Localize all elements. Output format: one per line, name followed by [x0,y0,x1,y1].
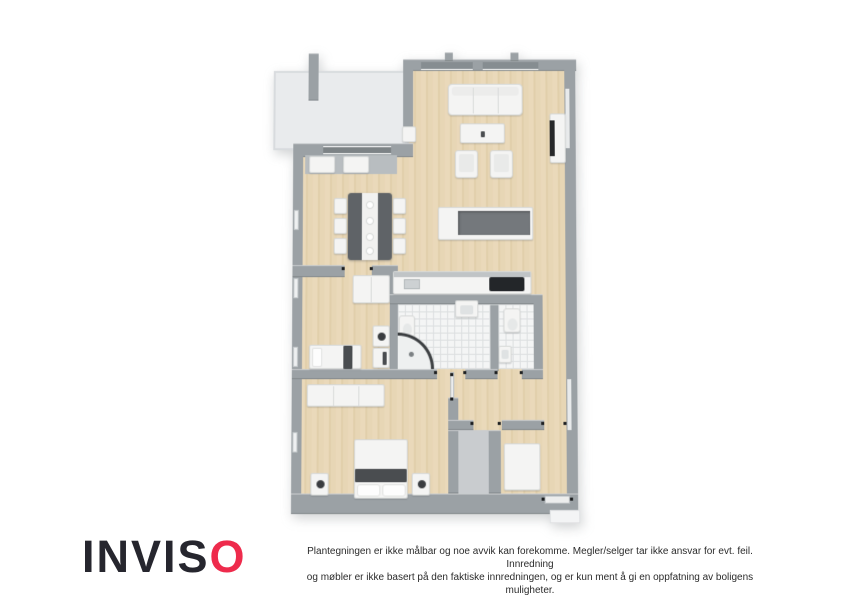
tv-screen [550,120,555,156]
bathroom-sink-basin [460,305,473,314]
right-wall-window-2 [567,379,571,430]
bottom-wall [291,493,578,514]
wc-toilet [503,308,520,332]
kitchen-wall-cabinet-2 [343,156,369,173]
wc-toilet-seat [507,318,517,330]
hall-top-wall-c [522,369,543,379]
door-mark [342,267,345,270]
door-mark [495,371,498,374]
balcony-slider-door [323,146,391,154]
door-mark [570,498,573,501]
dresser-unit [373,348,390,368]
bathroom-right-wall [534,294,543,377]
single-bed-blanket [343,346,352,369]
entrance-door [545,496,570,504]
sofa-seam-1 [473,88,474,114]
logo-letter-accent: O [210,531,247,582]
balcony-living-wall [403,59,413,130]
window-mullion-stub-2 [510,52,518,61]
storage-floor [458,430,489,493]
door-mark [542,498,545,501]
coffee-table [460,123,505,143]
storage-closet-wall [489,430,501,493]
door-mark [520,371,523,374]
door-mark [450,373,453,376]
dining-chair-right-1 [393,198,406,214]
sofa-back-cushion [452,87,519,96]
single-bed [309,345,362,369]
kitchen-island-counter-top [458,211,530,235]
nightstand-2-lamp [418,480,426,488]
door-mark [498,422,501,425]
double-bed-pillow-2 [382,484,405,496]
dining-chair-right-3 [393,238,406,254]
wc-basin-bowl [502,350,509,359]
door-mark [470,422,473,425]
door-mark [463,371,466,374]
double-bed [354,439,408,498]
bathroom-wc-wall [490,304,498,371]
armchair-1-seat [459,154,474,172]
nightstand-2 [412,473,430,496]
entry-wardrobe [504,443,541,490]
washing-machine-door [378,333,386,341]
nightstand-1 [310,473,328,496]
double-bed-blanket [355,469,407,482]
top-window-2 [483,62,539,70]
kitchen-island [438,207,533,240]
left-window-4 [292,432,297,452]
disclaimer-line-2: og møbler er ikke basert på den faktiske… [297,571,763,597]
sofa [448,84,523,116]
balcony-wall-stub [309,53,319,100]
sofa-seam-2 [498,88,499,114]
left-window-1 [294,210,299,230]
double-bed-pillow-1 [357,484,380,496]
dining-chair-left-2 [334,218,347,234]
dining-plate-2 [366,217,374,225]
door-mark [434,371,437,374]
nightstand-1-lamp [316,480,324,488]
door-mark [370,267,373,270]
dining-plate-4 [366,247,374,255]
lower-rooms-wall-b [502,420,545,430]
dining-chair-left-3 [334,238,347,254]
small-bedroom-wardrobe-seam [371,277,372,302]
door-mark [450,397,453,400]
dresser-unit-detail [383,352,387,365]
hall-top-wall-a [292,369,437,379]
cooktop [489,277,524,291]
master-wardrobe-seam-2 [358,386,359,405]
dining-bedroom-wall-a [292,265,344,277]
left-window-2 [293,278,298,298]
kitchen-wall-cabinet-row [305,155,397,174]
logo-text-dark: INVIS [82,531,210,582]
wall-end-shelf [402,126,416,142]
left-window-3 [293,347,298,367]
floor-plan [269,49,590,526]
disclaimer-text: Plantegningen er ikke målbar og noe avvi… [297,545,763,597]
entrance-step [550,510,581,523]
washing-machine [373,326,390,347]
wc-basin [499,346,512,363]
shower-drain [409,352,414,357]
armchair-2-seat [494,154,509,172]
master-wardrobe-seam-1 [333,386,334,405]
window-mullion-stub-1 [445,52,453,61]
disclaimer-line-1: Plantegningen er ikke målbar og noe avvi… [297,545,763,571]
small-bedroom-wardrobe [353,275,390,303]
master-bedroom-right-wall-lower [448,430,458,493]
kitchen-counter [393,271,532,294]
dining-table [348,193,392,260]
hall-top-wall-b [465,369,497,379]
bathroom-sink [455,300,478,317]
balcony-floor [273,71,407,150]
dining-chair-left-1 [334,198,347,214]
inviso-logo: INVISO [82,534,247,579]
dining-plate-1 [366,201,374,209]
armchair-2 [490,150,513,178]
single-bed-pillow [312,348,322,367]
coffee-table-decor [481,131,485,137]
dining-chair-right-2 [393,218,406,234]
armchair-1 [455,150,478,178]
kitchen-wall-cabinet-1 [309,156,335,173]
kitchen-sink [404,279,420,289]
page: INVISO Plantegningen er ikke målbar og n… [0,0,849,600]
dining-plate-3 [366,233,374,241]
door-mark [541,422,544,425]
top-window-1 [421,62,473,70]
right-wall-window-1 [565,89,569,148]
master-wardrobe [307,384,385,406]
door-mark [563,422,566,425]
